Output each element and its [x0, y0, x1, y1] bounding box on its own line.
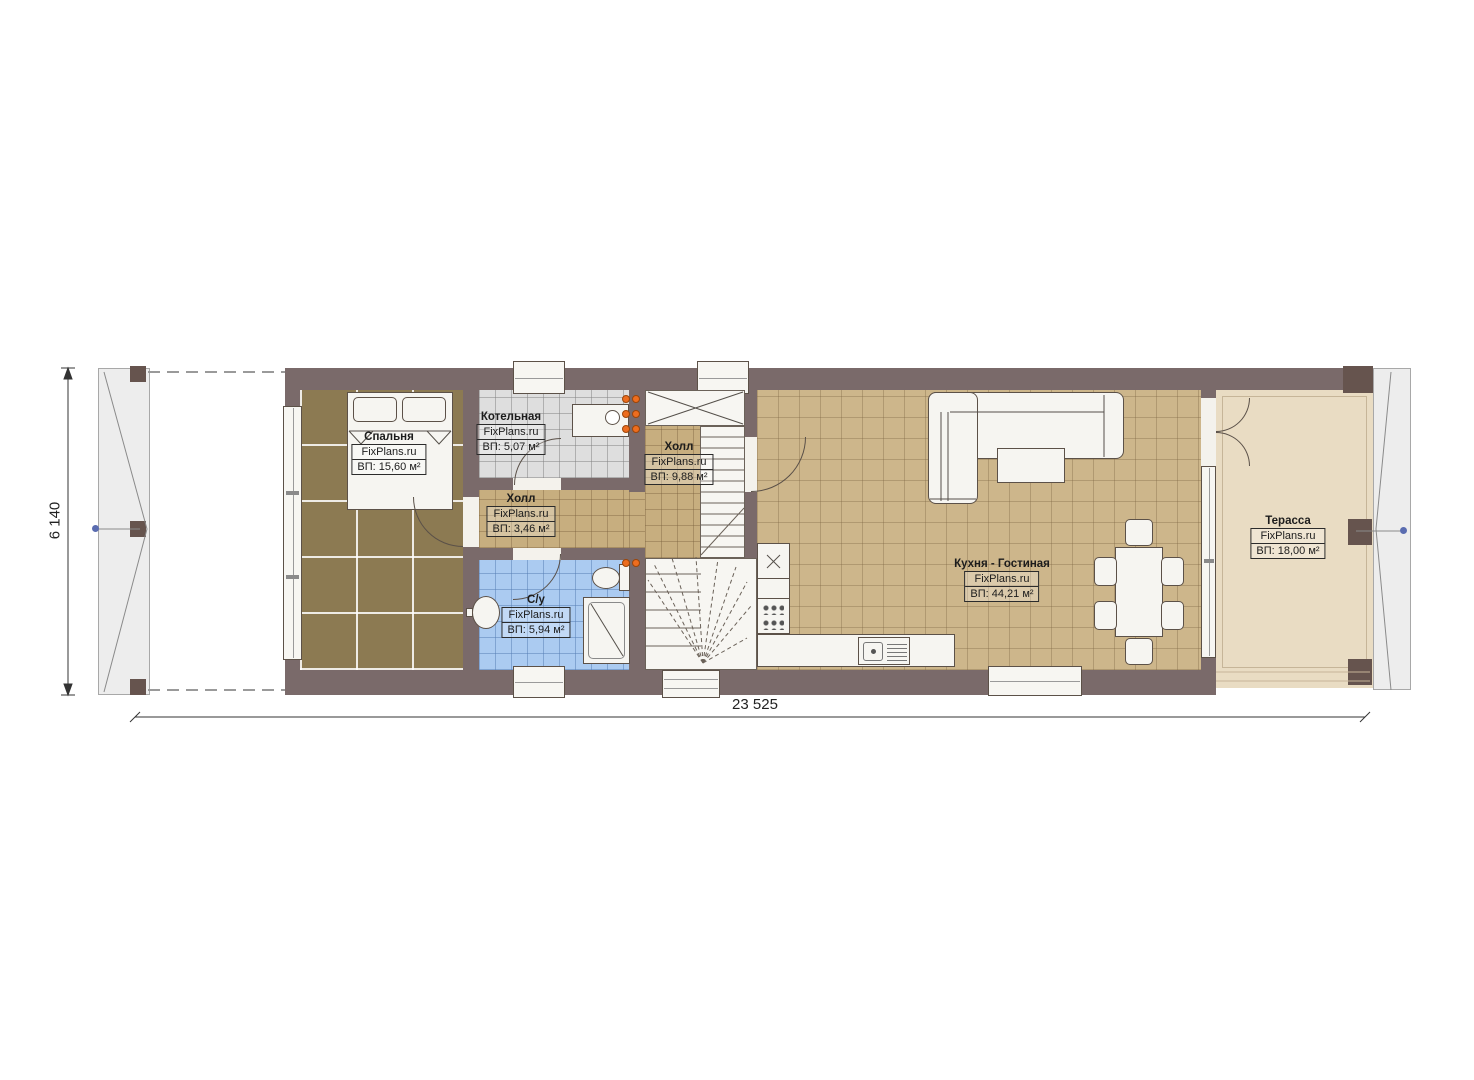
room-name: Терасса	[1265, 515, 1311, 527]
room-label-box: FixPlans.ru ВП: 5,07 м²	[476, 424, 545, 455]
hall-passage-floor	[629, 492, 645, 548]
room-label-hall-small: Холл FixPlans.ru ВП: 3,46 м²	[486, 493, 555, 537]
radiator-icon	[622, 410, 640, 418]
room-name: Котельная	[481, 411, 541, 423]
room-label-terrace: Терасса FixPlans.ru ВП: 18,00 м²	[1250, 515, 1325, 559]
floor-plan: Спальня FixPlans.ru ВП: 15,60 м² Котельн…	[0, 0, 1474, 1080]
room-area: ВП: 5,94 м²	[502, 623, 569, 637]
room-name: С/у	[527, 594, 545, 606]
room-label-box: FixPlans.ru ВП: 3,46 м²	[486, 506, 555, 537]
radiator-icon	[622, 395, 640, 403]
dining-table	[1115, 547, 1163, 637]
bathroom-sink-tap	[466, 608, 473, 617]
shower-tray	[583, 597, 630, 664]
wall-stairs-upper	[745, 390, 757, 437]
axis-marker-left	[92, 525, 99, 532]
toilet-tank	[619, 564, 630, 591]
boiler-unit-icon	[605, 410, 620, 425]
dining-chair-right-1	[1161, 557, 1184, 586]
radiator-icon	[622, 559, 640, 567]
room-brand: FixPlans.ru	[645, 455, 712, 470]
room-label-bedroom: Спальня FixPlans.ru ВП: 15,60 м²	[351, 431, 426, 475]
room-name: Холл	[665, 441, 694, 453]
window-bedroom-west	[283, 406, 302, 660]
boiler-counter	[572, 404, 629, 437]
stairs-winder	[645, 558, 757, 670]
stove	[757, 598, 790, 634]
room-area: ВП: 5,07 м²	[477, 440, 544, 454]
bed-pillow-left	[353, 397, 397, 422]
terrace-post-mid	[1348, 519, 1372, 545]
room-brand: FixPlans.ru	[487, 507, 554, 522]
porch-post-mid	[130, 521, 146, 537]
room-name: Кухня - Гостиная	[954, 558, 1050, 570]
entrance-door-step	[662, 670, 720, 698]
wall-hall-upper	[629, 390, 645, 492]
porch-post-top	[130, 366, 146, 382]
closet	[645, 390, 745, 426]
room-brand: FixPlans.ru	[352, 445, 425, 460]
room-label-kitchen-living: Кухня - Гостиная FixPlans.ru ВП: 44,21 м…	[954, 558, 1050, 602]
sofa-chaise	[928, 392, 978, 504]
room-label-boiler: Котельная FixPlans.ru ВП: 5,07 м²	[476, 411, 545, 455]
dimension-bottom-label: 23 525	[655, 696, 855, 713]
room-label-box: FixPlans.ru ВП: 44,21 м²	[964, 571, 1039, 602]
room-name: Холл	[507, 493, 536, 505]
dining-chair-bottom	[1125, 638, 1153, 665]
terrace-door-opening	[1201, 398, 1216, 466]
bedroom-door-opening	[463, 497, 479, 547]
wall-hall-bath-left	[479, 548, 513, 560]
kitchen-counter-south	[757, 634, 955, 667]
wall-boiler-hall-left	[479, 478, 513, 490]
window-living-east	[1201, 466, 1216, 658]
coffee-table	[997, 448, 1065, 483]
wall-right-upper-stub	[1201, 390, 1216, 398]
wall-top	[285, 368, 1373, 390]
terrace-post-bottom	[1348, 659, 1372, 685]
dimension-left-label: 6 140	[47, 476, 64, 566]
room-label-box: FixPlans.ru ВП: 5,94 м²	[501, 607, 570, 638]
wall-right-lower-stub	[1201, 658, 1216, 672]
window-bathroom-south	[513, 666, 565, 698]
terrace-post-top	[1343, 366, 1373, 393]
kitchen-sink	[858, 637, 910, 665]
room-brand: FixPlans.ru	[477, 425, 544, 440]
dining-chair-right-2	[1161, 601, 1184, 630]
dining-chair-top	[1125, 519, 1153, 546]
radiator-icon	[622, 425, 640, 433]
kitchen-counter-mid	[757, 578, 790, 599]
porch-post-bottom	[130, 679, 146, 695]
room-label-box: FixPlans.ru ВП: 18,00 м²	[1250, 528, 1325, 559]
room-label-bathroom: С/у FixPlans.ru ВП: 5,94 м²	[501, 594, 570, 638]
fridge	[757, 543, 790, 579]
room-brand: FixPlans.ru	[1251, 529, 1324, 544]
wall-hall-bath-right	[561, 548, 629, 560]
room-area: ВП: 18,00 м²	[1251, 544, 1324, 558]
wall-boiler-hall-right	[561, 478, 629, 490]
room-area: ВП: 3,46 м²	[487, 522, 554, 536]
room-label-box: FixPlans.ru ВП: 15,60 м²	[351, 444, 426, 475]
toilet-bowl	[592, 567, 620, 589]
room-label-box: FixPlans.ru ВП: 9,88 м²	[644, 454, 713, 485]
dining-chair-left-2	[1094, 601, 1117, 630]
room-area: ВП: 15,60 м²	[352, 460, 425, 474]
room-label-hall: Холл FixPlans.ru ВП: 9,88 м²	[644, 441, 713, 485]
room-name: Спальня	[364, 431, 414, 443]
room-brand: FixPlans.ru	[965, 572, 1038, 587]
bed-pillow-right	[402, 397, 446, 422]
window-boiler-north	[513, 361, 565, 394]
dining-chair-left-1	[1094, 557, 1117, 586]
bathroom-sink	[472, 596, 500, 629]
window-living-south	[988, 666, 1082, 696]
axis-marker-right	[1400, 527, 1407, 534]
room-area: ВП: 9,88 м²	[645, 470, 712, 484]
room-brand: FixPlans.ru	[502, 608, 569, 623]
room-area: ВП: 44,21 м²	[965, 587, 1038, 601]
